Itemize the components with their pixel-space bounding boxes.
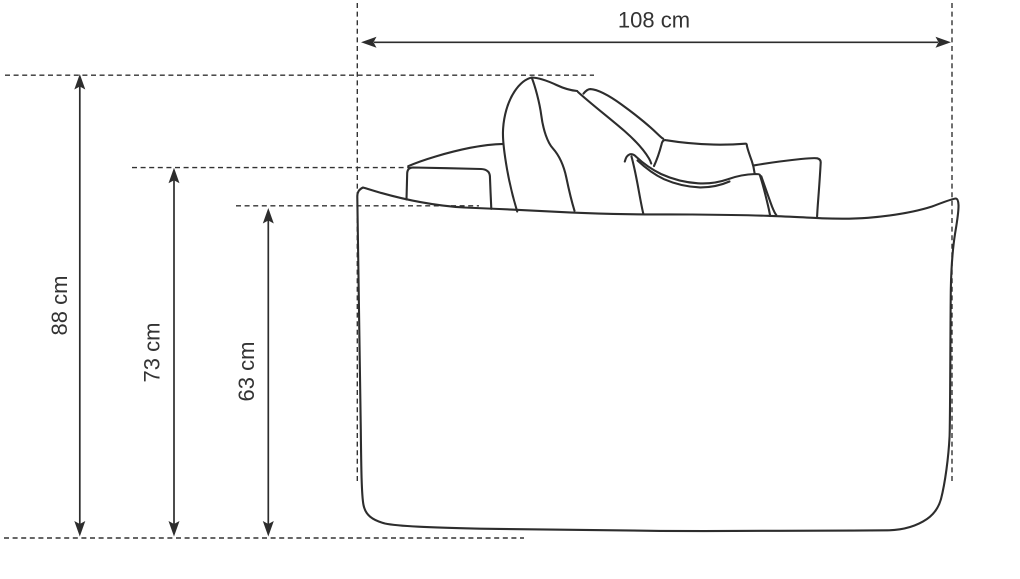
svg-text:108 cm: 108 cm <box>618 8 690 33</box>
svg-text:63 cm: 63 cm <box>234 342 259 402</box>
svg-text:73 cm: 73 cm <box>140 323 165 383</box>
svg-text:88 cm: 88 cm <box>47 276 72 336</box>
